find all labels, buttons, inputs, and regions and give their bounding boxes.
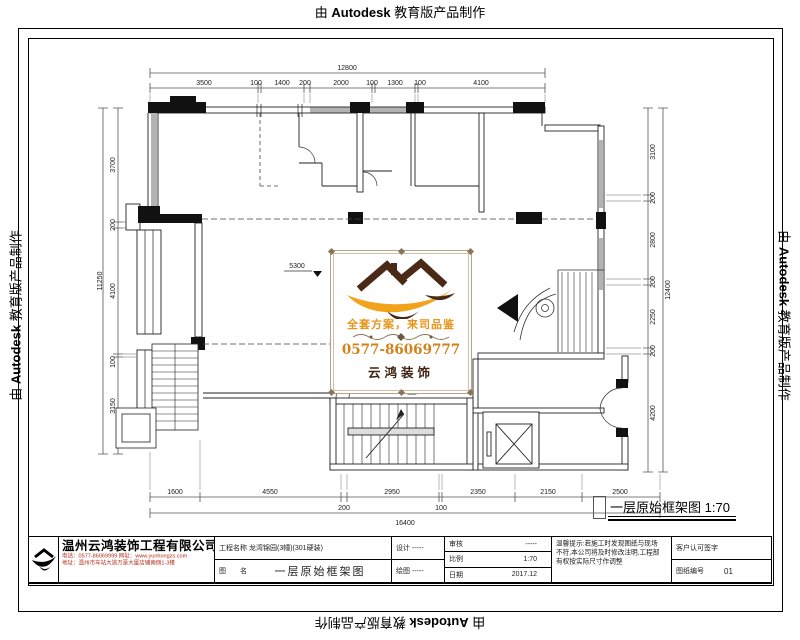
- audit-scale-date-cell: 审核 ----- 比例 1:70 日期 2017.12: [445, 537, 552, 582]
- dim-value: 12400: [665, 280, 672, 300]
- notice-line: 温馨提示:若施工时发现图纸与现场: [556, 540, 661, 549]
- company-address: 地址：温州市车站大道万豪大厦店铺南侧1-3楼: [62, 561, 199, 567]
- dim-value: 4550: [262, 489, 278, 496]
- company-logo-icon: [31, 548, 57, 572]
- notice-cell: 温馨提示:若施工时发现图纸与现场 不符,本公司将及时修改注明,工程部 有权按实际…: [552, 537, 672, 582]
- number-value: 01: [724, 567, 733, 576]
- drawing-label: 一层原始框架图 1:70: [608, 497, 736, 521]
- dim-value: 100: [414, 80, 426, 87]
- ornamental-divider: [349, 332, 453, 342]
- stair-direction-arrow: [497, 294, 518, 322]
- brand-logo-card: 全套方案，来司品鉴 0577-86069777 云鸿装饰: [330, 250, 472, 394]
- dim-value: 2950: [384, 489, 400, 496]
- dim-value: 4100: [473, 80, 489, 87]
- project-label: 工程名称: [215, 543, 249, 553]
- company-info-cell: 温州云鸿装饰工程有限公司 电话：0577-86069999 网址：www.yun…: [59, 537, 215, 582]
- sign-label: 客户认可签字: [672, 543, 720, 553]
- drawing-sheet: 由 Autodesk 教育版产品制作 由 Autodesk 教育版产品制作 由 …: [0, 0, 800, 640]
- dim-value: 200: [110, 219, 117, 231]
- watermark-bottom: 由 Autodesk 教育版产品制作: [0, 614, 800, 633]
- brand-logo-icon: [341, 257, 461, 319]
- dim-value: 1300: [387, 80, 403, 87]
- design-value: -----: [412, 545, 424, 552]
- dim-value: 1600: [167, 489, 183, 496]
- top-dimension-values: 12800 3500 100 1400 200 2000 100 1300 10…: [196, 65, 489, 87]
- dim-value: 2000: [333, 80, 349, 87]
- dim-value: 100: [366, 80, 378, 87]
- notice-line: 不符,本公司将及时修改注明,工程部: [556, 549, 661, 558]
- brand-phone: 0577-86069777: [342, 342, 460, 359]
- number-label: 图纸编号: [672, 566, 706, 576]
- dim-value: 16400: [395, 520, 415, 527]
- svg-text:5300: 5300: [289, 263, 305, 270]
- date-value: 2017.12: [512, 571, 551, 578]
- bottom-dimension-values: 1600 4550 2950 2350 2150 2500 200 100 16…: [167, 489, 628, 527]
- dim-value: 1400: [274, 80, 290, 87]
- dim-value: 200: [650, 345, 657, 357]
- company-logo-cell: [29, 537, 59, 582]
- elevator: [483, 412, 539, 468]
- elevation-marker: 5300: [284, 263, 322, 277]
- dim-value: 2150: [540, 489, 556, 496]
- design-cell: 设计 ----- 绘图 -----: [392, 537, 445, 582]
- dim-value: 11250: [97, 271, 104, 290]
- curved-stair: [497, 270, 604, 352]
- dim-value: 4200: [650, 405, 657, 421]
- dim-value: 100: [110, 356, 117, 368]
- audit-label: 审核: [445, 539, 465, 549]
- signature-cell: 客户认可签字 图纸编号 01: [672, 537, 771, 582]
- draft-label: 绘图: [392, 566, 412, 576]
- drawing-name-label: 图 名: [215, 566, 249, 576]
- dim-value: 200: [299, 80, 311, 87]
- dim-value: 2500: [612, 489, 628, 496]
- left-dimension-values: 3700 200 4100 100 3150 11250: [97, 157, 117, 414]
- date-label: 日期: [445, 570, 465, 580]
- project-value: 龙湾锦园(3幢)(301硬装): [249, 543, 323, 553]
- dim-value: 200: [650, 276, 657, 288]
- company-name: 温州云鸿装饰工程有限公司: [62, 539, 211, 554]
- title-block: 温州云鸿装饰工程有限公司 电话：0577-86069999 网址：www.yun…: [28, 536, 772, 584]
- drawing-name-value: 一层原始框架图: [249, 563, 391, 579]
- company-contact: 电话：0577-86069999 网址：www.yunhongzs.com: [62, 554, 199, 560]
- ornament: [328, 248, 335, 255]
- right-dimension-values: 3100 200 2800 200 2250 200 4200 12400: [650, 144, 672, 421]
- dim-value: 100: [250, 80, 262, 87]
- scale-label: 比例: [445, 554, 465, 564]
- dim-value: 3100: [650, 144, 657, 160]
- notice-line: 有权按实际尺寸作调整: [556, 558, 661, 567]
- dim-value: 3700: [110, 157, 117, 173]
- brand-slogan: 全套方案，来司品鉴: [347, 319, 455, 332]
- audit-value: -----: [525, 541, 551, 548]
- design-label: 设计: [392, 543, 412, 553]
- dim-value: 200: [338, 505, 350, 512]
- brand-name: 云鸿装饰: [368, 362, 434, 381]
- dim-value: 12800: [337, 65, 357, 72]
- scale-value: 1:70: [523, 556, 551, 563]
- dim-value: 2350: [470, 489, 486, 496]
- dim-value: 100: [435, 505, 447, 512]
- dim-value: 4100: [110, 283, 117, 299]
- project-cell: 工程名称 龙湾锦园(3幢)(301硬装) 图 名 一层原始框架图: [215, 537, 392, 582]
- draft-value: -----: [412, 568, 424, 575]
- dim-value: 2800: [650, 232, 657, 248]
- dim-value: 2250: [650, 309, 657, 325]
- dim-value: 200: [650, 192, 657, 204]
- drawing-label-leader: [593, 496, 606, 519]
- staircase: [330, 388, 473, 470]
- ornament: [398, 248, 405, 255]
- entry-steps: [116, 344, 198, 448]
- dim-value: 3500: [196, 80, 212, 87]
